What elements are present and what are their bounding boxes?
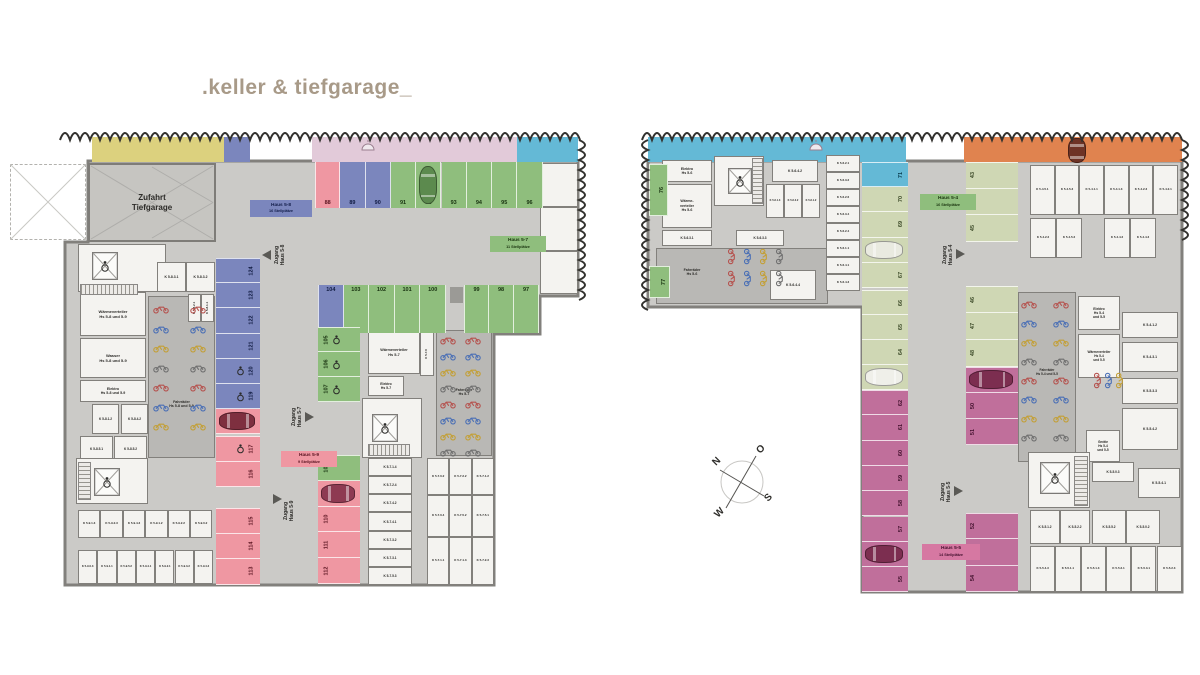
room-k5-952 bbox=[117, 550, 136, 584]
stall-112: 112 bbox=[318, 558, 360, 584]
room-k5-704 bbox=[427, 495, 449, 537]
car-strip bbox=[1068, 138, 1086, 163]
room-k5-921 bbox=[155, 550, 174, 584]
stall-69: 69 bbox=[862, 212, 908, 237]
stall-102: 102 bbox=[369, 285, 395, 333]
stairs-mid bbox=[368, 444, 410, 456]
room-k5-512 bbox=[1030, 510, 1060, 544]
stall-65: 65 bbox=[862, 315, 908, 340]
room-k5-821 bbox=[188, 294, 201, 322]
stall-89: 89 bbox=[340, 162, 365, 208]
badge-haus-5-8: Haus 5-816 Stellplätze bbox=[250, 200, 312, 217]
room-k5-423 bbox=[1129, 165, 1154, 215]
svg-text:N: N bbox=[710, 455, 723, 468]
room-k5-631 bbox=[662, 230, 712, 246]
stall-77: 77 bbox=[649, 266, 670, 298]
badge-haus-5-9: Haus 5-99 Stellplätze bbox=[281, 451, 337, 467]
driveway-outline bbox=[10, 164, 86, 240]
room-k5-911 bbox=[97, 550, 116, 584]
room-k5-442 bbox=[1104, 218, 1130, 258]
car-icon-118 bbox=[219, 412, 255, 430]
room-k5-812 bbox=[92, 404, 119, 434]
room-k5-731 bbox=[368, 549, 412, 567]
stall-71: 71 bbox=[862, 162, 908, 187]
floorplan-page: .keller & tiefgarage_ Fahrräder Hs 5-8 u… bbox=[0, 0, 1200, 675]
stall-113: 113 bbox=[216, 559, 260, 585]
arrow-zugang-5-4 bbox=[956, 249, 965, 259]
stall-46: 46 bbox=[966, 286, 1018, 313]
stall-88: 88 bbox=[315, 162, 340, 208]
stall-111: 111 bbox=[318, 532, 360, 558]
car-icon-49 bbox=[969, 370, 1013, 389]
stall-96: 96 bbox=[517, 162, 542, 208]
room-k5-724 bbox=[368, 476, 412, 494]
room-k5-523 bbox=[1157, 546, 1183, 592]
room-k5-712 bbox=[472, 458, 494, 495]
room-ne-3 bbox=[540, 251, 578, 294]
arrow-zugang-5-5 bbox=[954, 486, 963, 496]
room-k5-713 bbox=[449, 537, 471, 585]
stall-47: 47 bbox=[966, 313, 1018, 340]
car-icon-63 bbox=[865, 368, 903, 386]
room-k5-624 bbox=[826, 223, 860, 240]
stall-114: 114 bbox=[216, 534, 260, 560]
room-waermeverteiler-hs45 bbox=[1078, 334, 1120, 378]
badge-haus-5-4: Haus 5-416 Stellplätze bbox=[920, 194, 976, 210]
room-k5-422 bbox=[1030, 218, 1056, 258]
room-elektro-hs56 bbox=[662, 160, 712, 182]
stall-110: 110 bbox=[318, 507, 360, 533]
room-k5-644 bbox=[770, 270, 816, 300]
stall-67: 67 bbox=[862, 263, 908, 288]
arrow-zugang-5-7 bbox=[305, 412, 314, 422]
stall-76: 76 bbox=[649, 164, 668, 216]
stairs-r6 bbox=[752, 158, 763, 204]
room-k5-932 bbox=[175, 550, 194, 584]
room-k5-811 bbox=[201, 294, 214, 322]
room-k5-702 bbox=[427, 458, 449, 495]
room-k5-452 bbox=[1056, 218, 1082, 258]
strip-blue bbox=[224, 137, 250, 162]
room-k5-543 bbox=[1030, 546, 1055, 592]
stall-58: 58 bbox=[862, 491, 908, 516]
room-k5-634 bbox=[826, 206, 860, 223]
stall-95: 95 bbox=[492, 162, 517, 208]
stall-106: 106 bbox=[318, 352, 360, 377]
stall-104: 104 bbox=[318, 285, 344, 333]
stall-122: 122 bbox=[216, 308, 260, 333]
room-k5-542 bbox=[1122, 408, 1178, 450]
stall-59: 59 bbox=[862, 466, 908, 491]
stall-99: 99 bbox=[464, 285, 489, 333]
stall-61: 61 bbox=[862, 415, 908, 440]
room-k5-732 bbox=[368, 531, 412, 549]
room-k5-941 bbox=[136, 550, 155, 584]
badge-haus-5-5: Haus 5-514 Stellplätze bbox=[922, 544, 980, 560]
stall-119: 119 bbox=[216, 384, 260, 409]
stall-94: 94 bbox=[467, 162, 492, 208]
room-k5-943 bbox=[123, 510, 145, 538]
room-k5-513 bbox=[1081, 546, 1106, 592]
stall-107: 107 bbox=[318, 377, 360, 402]
room-k5-521 bbox=[1106, 546, 1131, 592]
stall-62: 62 bbox=[862, 390, 908, 415]
label-zugang-haus-5-9: Zugang Haus 5-9 bbox=[269, 451, 309, 571]
room-k5-622 bbox=[784, 184, 802, 218]
room-k5-412 bbox=[1122, 312, 1178, 338]
page-title: .keller & tiefgarage_ bbox=[202, 76, 412, 100]
room-k5-912 bbox=[145, 510, 167, 538]
room-k5-831 bbox=[157, 262, 186, 292]
room-k5-502 bbox=[1126, 510, 1160, 544]
room-k5-922 bbox=[168, 510, 190, 538]
stall-116: 116 bbox=[216, 462, 260, 488]
stall-117: 117 bbox=[216, 436, 260, 462]
room-k5-942 bbox=[194, 550, 213, 584]
svg-text:O: O bbox=[754, 443, 767, 456]
room-k5-723 bbox=[472, 537, 494, 585]
strip-lightpink bbox=[312, 137, 517, 162]
room-k5-413 bbox=[1104, 165, 1129, 215]
stall-103: 103 bbox=[344, 285, 370, 333]
room-k5-902 bbox=[190, 510, 212, 538]
stall-91: 91 bbox=[391, 162, 416, 208]
room-k5-903 bbox=[78, 550, 97, 584]
room-k5-641 bbox=[826, 257, 860, 274]
strip-cyan-right bbox=[648, 137, 906, 162]
room-elektro-hs57 bbox=[368, 376, 404, 396]
stall-50: 50 bbox=[966, 393, 1018, 419]
stairs-sw bbox=[78, 462, 91, 500]
room-k5-643 bbox=[826, 274, 860, 291]
stall-123: 123 bbox=[216, 283, 260, 308]
room-k5-842 bbox=[121, 404, 148, 434]
room-k5-714 bbox=[368, 458, 412, 476]
room-k5-76 bbox=[420, 332, 434, 376]
stall-115: 115 bbox=[216, 508, 260, 534]
car-icon-56 bbox=[865, 545, 903, 563]
stall-121: 121 bbox=[216, 334, 260, 359]
room-k5-612 bbox=[802, 184, 820, 218]
stall-90: 90 bbox=[366, 162, 391, 208]
pillar bbox=[450, 287, 463, 303]
stall-45: 45 bbox=[966, 215, 1018, 242]
room-k5-621 bbox=[826, 155, 860, 172]
stall-66: 66 bbox=[862, 290, 908, 315]
stall-120: 120 bbox=[216, 359, 260, 384]
room-k5-633 bbox=[736, 230, 784, 246]
room-wasser-hs58-59 bbox=[80, 338, 146, 378]
room-k5-752 bbox=[449, 495, 471, 537]
stall-93: 93 bbox=[442, 162, 467, 208]
stall-52: 52 bbox=[966, 513, 1018, 539]
car-icon-109 bbox=[321, 484, 355, 503]
stairs-r45 bbox=[1074, 456, 1088, 506]
room-k5-443 bbox=[1130, 218, 1156, 258]
stall-60: 60 bbox=[862, 441, 908, 466]
room-k5-626 bbox=[826, 189, 860, 206]
strip-cyan-left bbox=[517, 137, 578, 162]
svg-text:S: S bbox=[762, 491, 775, 504]
room-k5-741 bbox=[368, 512, 412, 530]
room-k5-711 bbox=[427, 537, 449, 585]
room-k5-632 bbox=[826, 172, 860, 189]
stall-57: 57 bbox=[862, 517, 908, 542]
room-geraete-hs45 bbox=[1086, 430, 1120, 462]
stall-124: 124 bbox=[216, 258, 260, 283]
room-waermeverteiler-hs58-59 bbox=[80, 292, 146, 336]
stall-51: 51 bbox=[966, 419, 1018, 445]
room-k5-722 bbox=[449, 458, 471, 495]
badge-haus-5-7: Haus 5-711 Stellplätze bbox=[490, 236, 546, 252]
room-k5-453 bbox=[1055, 165, 1080, 215]
room-k5-611 bbox=[826, 240, 860, 257]
room-fahrraeder-hs54-55 bbox=[1018, 292, 1076, 462]
stall-64: 64 bbox=[862, 340, 908, 365]
stall-54: 54 bbox=[966, 566, 1018, 592]
room-k5-742 bbox=[368, 494, 412, 512]
room-k5-431 bbox=[1122, 342, 1178, 372]
room-k5-511 bbox=[1055, 546, 1080, 592]
room-waermeverteiler-hs56 bbox=[662, 184, 712, 228]
stairs-nw bbox=[80, 284, 138, 295]
car-icon-92 bbox=[419, 166, 437, 204]
room-ne-1 bbox=[540, 163, 578, 207]
room-k5-753 bbox=[368, 567, 412, 585]
stall-97: 97 bbox=[514, 285, 539, 333]
room-k5-832 bbox=[186, 262, 215, 292]
room-k5-522 bbox=[1060, 510, 1090, 544]
ramp-tiefgarage bbox=[88, 163, 216, 242]
car-icon-68 bbox=[865, 241, 903, 259]
stall-98: 98 bbox=[489, 285, 514, 333]
room-k5-913 bbox=[78, 510, 100, 538]
arrow-zugang-5-9 bbox=[273, 494, 282, 504]
room-waermeverteiler-hs57 bbox=[368, 332, 420, 374]
stall-101: 101 bbox=[395, 285, 421, 333]
room-k5-411 bbox=[1079, 165, 1104, 215]
room-k5-451 bbox=[1030, 165, 1055, 215]
room-k5-533 bbox=[1122, 378, 1178, 404]
room-k5-552 bbox=[1092, 510, 1126, 544]
room-k5-531 bbox=[1131, 546, 1156, 592]
svg-text:W: W bbox=[712, 505, 727, 520]
stall-100: 100 bbox=[420, 285, 446, 333]
room-k5-503 bbox=[1092, 462, 1134, 482]
stall-43: 43 bbox=[966, 162, 1018, 189]
stall-105: 105 bbox=[318, 327, 360, 352]
room-k5-642 bbox=[772, 160, 818, 182]
stall-55: 55 bbox=[862, 567, 908, 592]
strip-yellow bbox=[92, 137, 224, 162]
stall-48: 48 bbox=[966, 340, 1018, 367]
room-elektro-hs58-59 bbox=[80, 380, 146, 402]
room-fahrraeder-hs57 bbox=[436, 330, 492, 456]
room-k5-421 bbox=[1153, 165, 1178, 215]
room-elektro-hs45 bbox=[1078, 296, 1120, 330]
stall-70: 70 bbox=[862, 187, 908, 212]
room-k5-613 bbox=[766, 184, 784, 218]
room-k5-923 bbox=[100, 510, 122, 538]
compass-rose: NOWS bbox=[686, 428, 806, 548]
arrow-zugang-5-8 bbox=[262, 250, 271, 260]
room-k5-541 bbox=[1138, 468, 1180, 498]
room-k5-751 bbox=[472, 495, 494, 537]
